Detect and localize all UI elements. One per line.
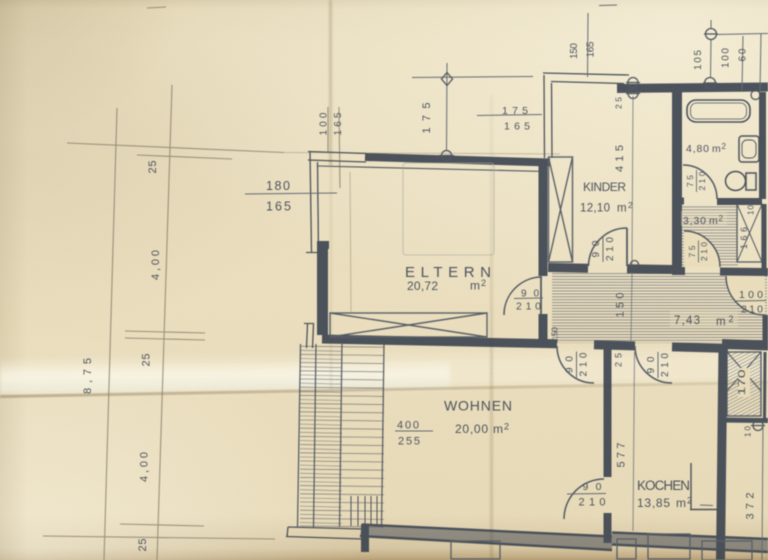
svg-text:m: m <box>709 215 718 227</box>
svg-text:2: 2 <box>628 200 633 210</box>
svg-text:25: 25 <box>614 353 624 367</box>
svg-text:90: 90 <box>646 356 657 373</box>
svg-text:210: 210 <box>579 352 590 376</box>
svg-text:165: 165 <box>333 112 344 135</box>
svg-text:210: 210 <box>741 304 763 316</box>
svg-text:255: 255 <box>398 436 420 448</box>
svg-text:8,75: 8,75 <box>82 358 94 394</box>
svg-text:150: 150 <box>615 293 627 318</box>
svg-text:170: 170 <box>737 369 748 396</box>
svg-text:210: 210 <box>660 353 671 377</box>
svg-text:20,72: 20,72 <box>407 279 438 293</box>
svg-text:m: m <box>676 496 686 510</box>
svg-text:m: m <box>493 422 503 436</box>
svg-text:210: 210 <box>699 242 709 261</box>
svg-text:4,80: 4,80 <box>686 143 709 155</box>
svg-text:100: 100 <box>739 289 763 301</box>
svg-text:100: 100 <box>721 48 732 68</box>
svg-text:2: 2 <box>719 214 724 223</box>
svg-text:2: 2 <box>722 142 727 151</box>
svg-text:400: 400 <box>397 420 419 432</box>
svg-text:210: 210 <box>697 171 707 190</box>
svg-text:25: 25 <box>147 161 159 174</box>
svg-text:105: 105 <box>693 50 704 70</box>
svg-text:12,10: 12,10 <box>580 203 610 215</box>
svg-text:m: m <box>716 316 726 328</box>
svg-text:m: m <box>617 203 627 215</box>
svg-text:75: 75 <box>685 175 695 187</box>
svg-text:WOHNEN: WOHNEN <box>444 398 512 414</box>
svg-text:25: 25 <box>614 97 624 109</box>
svg-text:210: 210 <box>516 301 541 313</box>
svg-text:25: 25 <box>141 354 153 367</box>
svg-text:13,85: 13,85 <box>637 496 670 510</box>
svg-text:10: 10 <box>747 204 756 215</box>
svg-text:KINDER: KINDER <box>583 180 626 194</box>
svg-text:2,50: 2,50 <box>550 327 560 343</box>
svg-text:4,00: 4,00 <box>139 452 151 482</box>
svg-text:175: 175 <box>421 103 433 134</box>
svg-text:2: 2 <box>481 278 486 288</box>
svg-text:25: 25 <box>137 539 149 552</box>
svg-text:m: m <box>470 279 480 293</box>
svg-text:165: 165 <box>266 200 291 214</box>
svg-text:4,00: 4,00 <box>150 250 162 280</box>
svg-text:577: 577 <box>616 443 628 468</box>
svg-text:210: 210 <box>605 237 616 261</box>
svg-text:165: 165 <box>504 121 530 133</box>
svg-text:165: 165 <box>586 41 597 57</box>
svg-text:90: 90 <box>565 356 576 373</box>
svg-text:3,30: 3,30 <box>683 215 706 227</box>
svg-text:415: 415 <box>614 145 626 172</box>
svg-text:372: 372 <box>745 493 757 520</box>
svg-text:150: 150 <box>569 43 580 59</box>
svg-text:100: 100 <box>319 112 330 135</box>
svg-text:m: m <box>712 143 721 155</box>
svg-text:175: 175 <box>502 105 528 117</box>
svg-text:2: 2 <box>504 422 509 432</box>
svg-text:166: 166 <box>739 227 749 249</box>
svg-text:90: 90 <box>583 481 602 493</box>
svg-text:7,43: 7,43 <box>674 315 700 327</box>
svg-text:2: 2 <box>687 496 692 506</box>
svg-text:20,00: 20,00 <box>455 422 488 436</box>
svg-text:KOCHEN: KOCHEN <box>637 478 690 493</box>
svg-text:180: 180 <box>266 179 290 193</box>
svg-text:2: 2 <box>729 314 734 324</box>
svg-text:210: 210 <box>579 497 606 509</box>
svg-text:60: 60 <box>738 48 749 61</box>
svg-text:10: 10 <box>744 425 753 437</box>
